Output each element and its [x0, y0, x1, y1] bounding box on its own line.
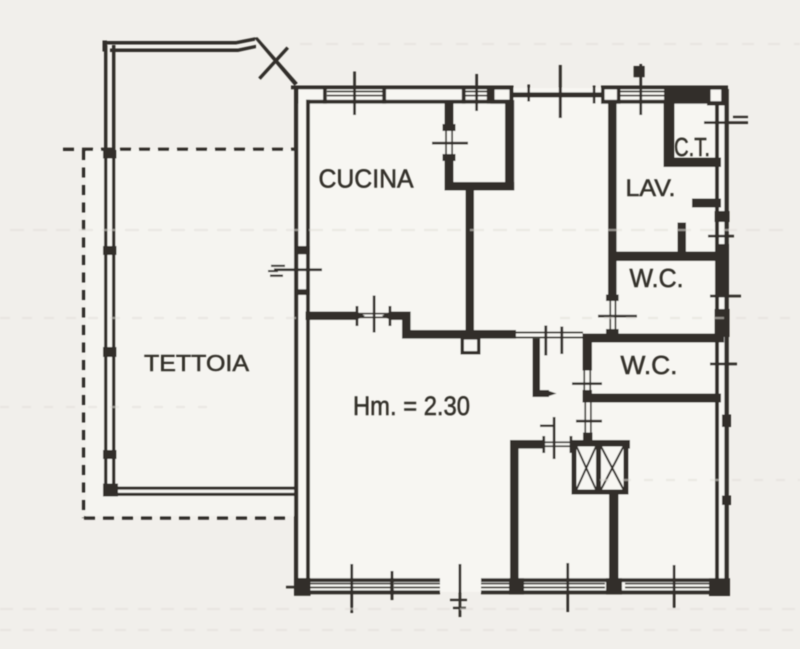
svg-text:LAV.: LAV. [626, 175, 676, 202]
svg-text:TETTOIA: TETTOIA [144, 350, 249, 376]
svg-text:W.C.: W.C. [630, 263, 684, 293]
svg-text:Hm. = 2.30: Hm. = 2.30 [353, 391, 470, 421]
svg-text:C.T.: C.T. [674, 132, 710, 162]
svg-text:W.C.: W.C. [621, 350, 678, 380]
svg-text:CUCINA: CUCINA [319, 164, 415, 194]
